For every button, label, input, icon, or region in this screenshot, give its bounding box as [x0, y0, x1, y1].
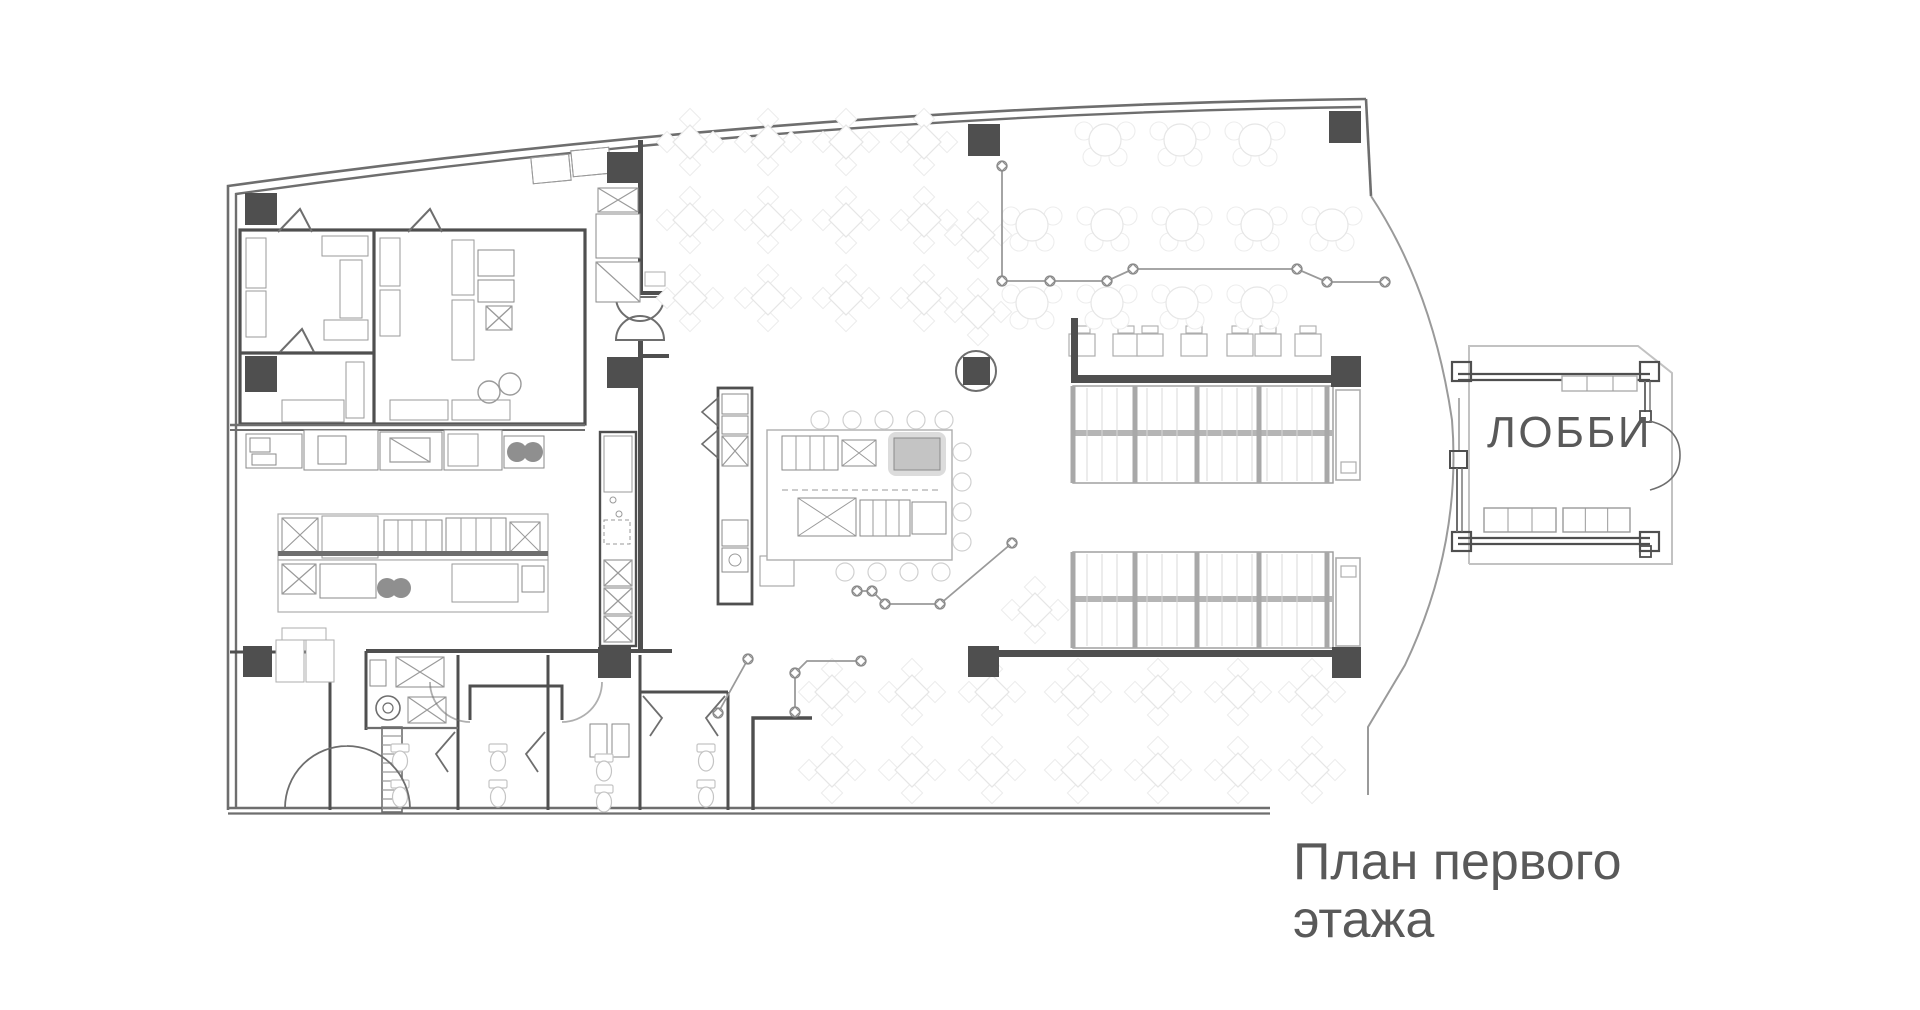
callout-node [1128, 264, 1138, 274]
table-cluster-round [1225, 122, 1285, 166]
floor-plan-drawing: ЛОББИ План первого этажа [0, 0, 1920, 1010]
table-cluster-round [1302, 207, 1362, 251]
callout-node [1007, 538, 1017, 548]
table-cluster-round [1152, 285, 1212, 329]
table-cluster-diamond [878, 736, 945, 803]
wc-block [366, 651, 812, 812]
table-cluster-diamond [1124, 736, 1191, 803]
toilet-fixture [595, 785, 613, 812]
table-cluster-round [1075, 122, 1135, 166]
callout-node [713, 708, 723, 718]
toilet-fixture [391, 780, 409, 807]
toilet-fixture [595, 754, 613, 781]
kitchen-equipment [246, 430, 548, 612]
callout-node [997, 276, 1007, 286]
table-cluster-round [1152, 207, 1212, 251]
table-cluster-diamond [1001, 576, 1068, 643]
plan-caption: План первого этажа [1293, 833, 1636, 949]
banquette-upper [1069, 318, 1360, 483]
table-cluster-diamond [812, 264, 879, 331]
table-cluster-round [1002, 207, 1062, 251]
callout-node [1102, 276, 1112, 286]
table-cluster-diamond [734, 108, 801, 175]
floor-plan-page: ЛОББИ План первого этажа [0, 0, 1920, 1010]
table-cluster-diamond [798, 658, 865, 725]
central-island [702, 351, 996, 604]
table-cluster-round [1077, 207, 1137, 251]
lobby-label: ЛОББИ [1487, 408, 1652, 457]
table-cluster-diamond [1278, 736, 1345, 803]
callout-node [935, 599, 945, 609]
toilet-fixture [489, 744, 507, 771]
callout-node [880, 599, 890, 609]
table-cluster-round [1227, 207, 1287, 251]
table-cluster-diamond [1204, 658, 1271, 725]
table-cluster-round [1002, 285, 1062, 329]
table-cluster-diamond [656, 108, 723, 175]
plan-caption-line1: План первого [1293, 833, 1622, 891]
table-cluster-diamond [878, 658, 945, 725]
table-cluster-diamond [798, 736, 865, 803]
toilet-fixture [697, 780, 715, 807]
callout-node [790, 707, 800, 717]
table-cluster-diamond [656, 186, 723, 253]
callout-node [1380, 277, 1390, 287]
lobby-benches [1484, 508, 1630, 532]
table-cluster-diamond [890, 264, 957, 331]
table-cluster-diamond [812, 186, 879, 253]
dining-tables-round [1002, 122, 1362, 329]
table-cluster-diamond [734, 186, 801, 253]
table-cluster-diamond [1044, 736, 1111, 803]
table-cluster-diamond [656, 264, 723, 331]
callout-node [1045, 276, 1055, 286]
toilet-fixture [489, 780, 507, 807]
table-cluster-diamond [890, 108, 957, 175]
toilet-fixture [697, 744, 715, 771]
lobby-room: ЛОББИ [1450, 346, 1680, 564]
storage-shelving [246, 236, 510, 422]
callout-node [852, 586, 862, 596]
callout-node [1322, 277, 1332, 287]
table-cluster-diamond [734, 264, 801, 331]
table-cluster-diamond [958, 736, 1025, 803]
kitchen-wall-strip [600, 432, 636, 646]
callout-node [867, 586, 877, 596]
table-cluster-round [1150, 122, 1210, 166]
callout-node [1292, 264, 1302, 274]
table-cluster-diamond [1204, 736, 1271, 803]
callout-node [997, 161, 1007, 171]
table-cluster-diamond [1124, 658, 1191, 725]
stall-doors [430, 682, 725, 772]
table-cluster-diamond [944, 278, 1011, 345]
table-cluster-round [1077, 285, 1137, 329]
table-cluster-diamond [1044, 658, 1111, 725]
callout-node [856, 656, 866, 666]
walkin-storage-rooms [230, 209, 585, 430]
wall-shelf-racks [531, 147, 611, 184]
table-cluster-diamond [890, 186, 957, 253]
toilets [391, 744, 715, 812]
callout-node [790, 668, 800, 678]
plan-caption-line2: этажа [1293, 891, 1434, 949]
callout-node [743, 654, 753, 664]
table-cluster-round [1227, 285, 1287, 329]
